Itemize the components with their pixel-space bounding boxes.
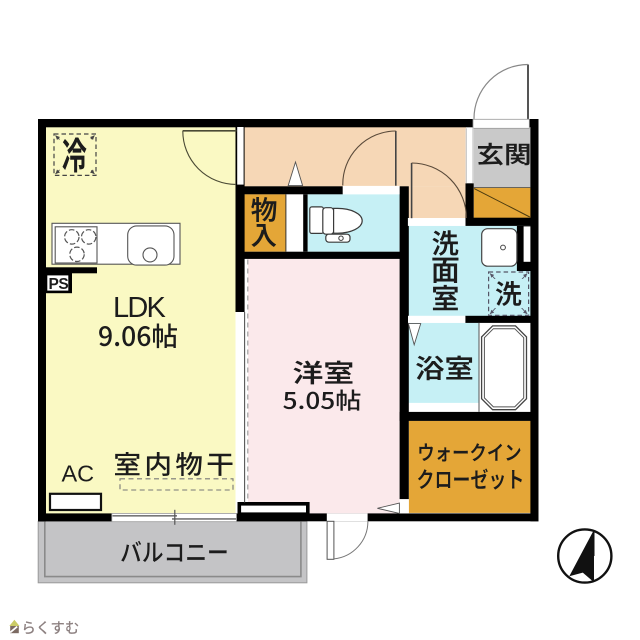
svg-text:LDK: LDK — [113, 292, 166, 324]
svg-text:AC: AC — [62, 461, 95, 487]
svg-text:PS: PS — [49, 276, 69, 293]
